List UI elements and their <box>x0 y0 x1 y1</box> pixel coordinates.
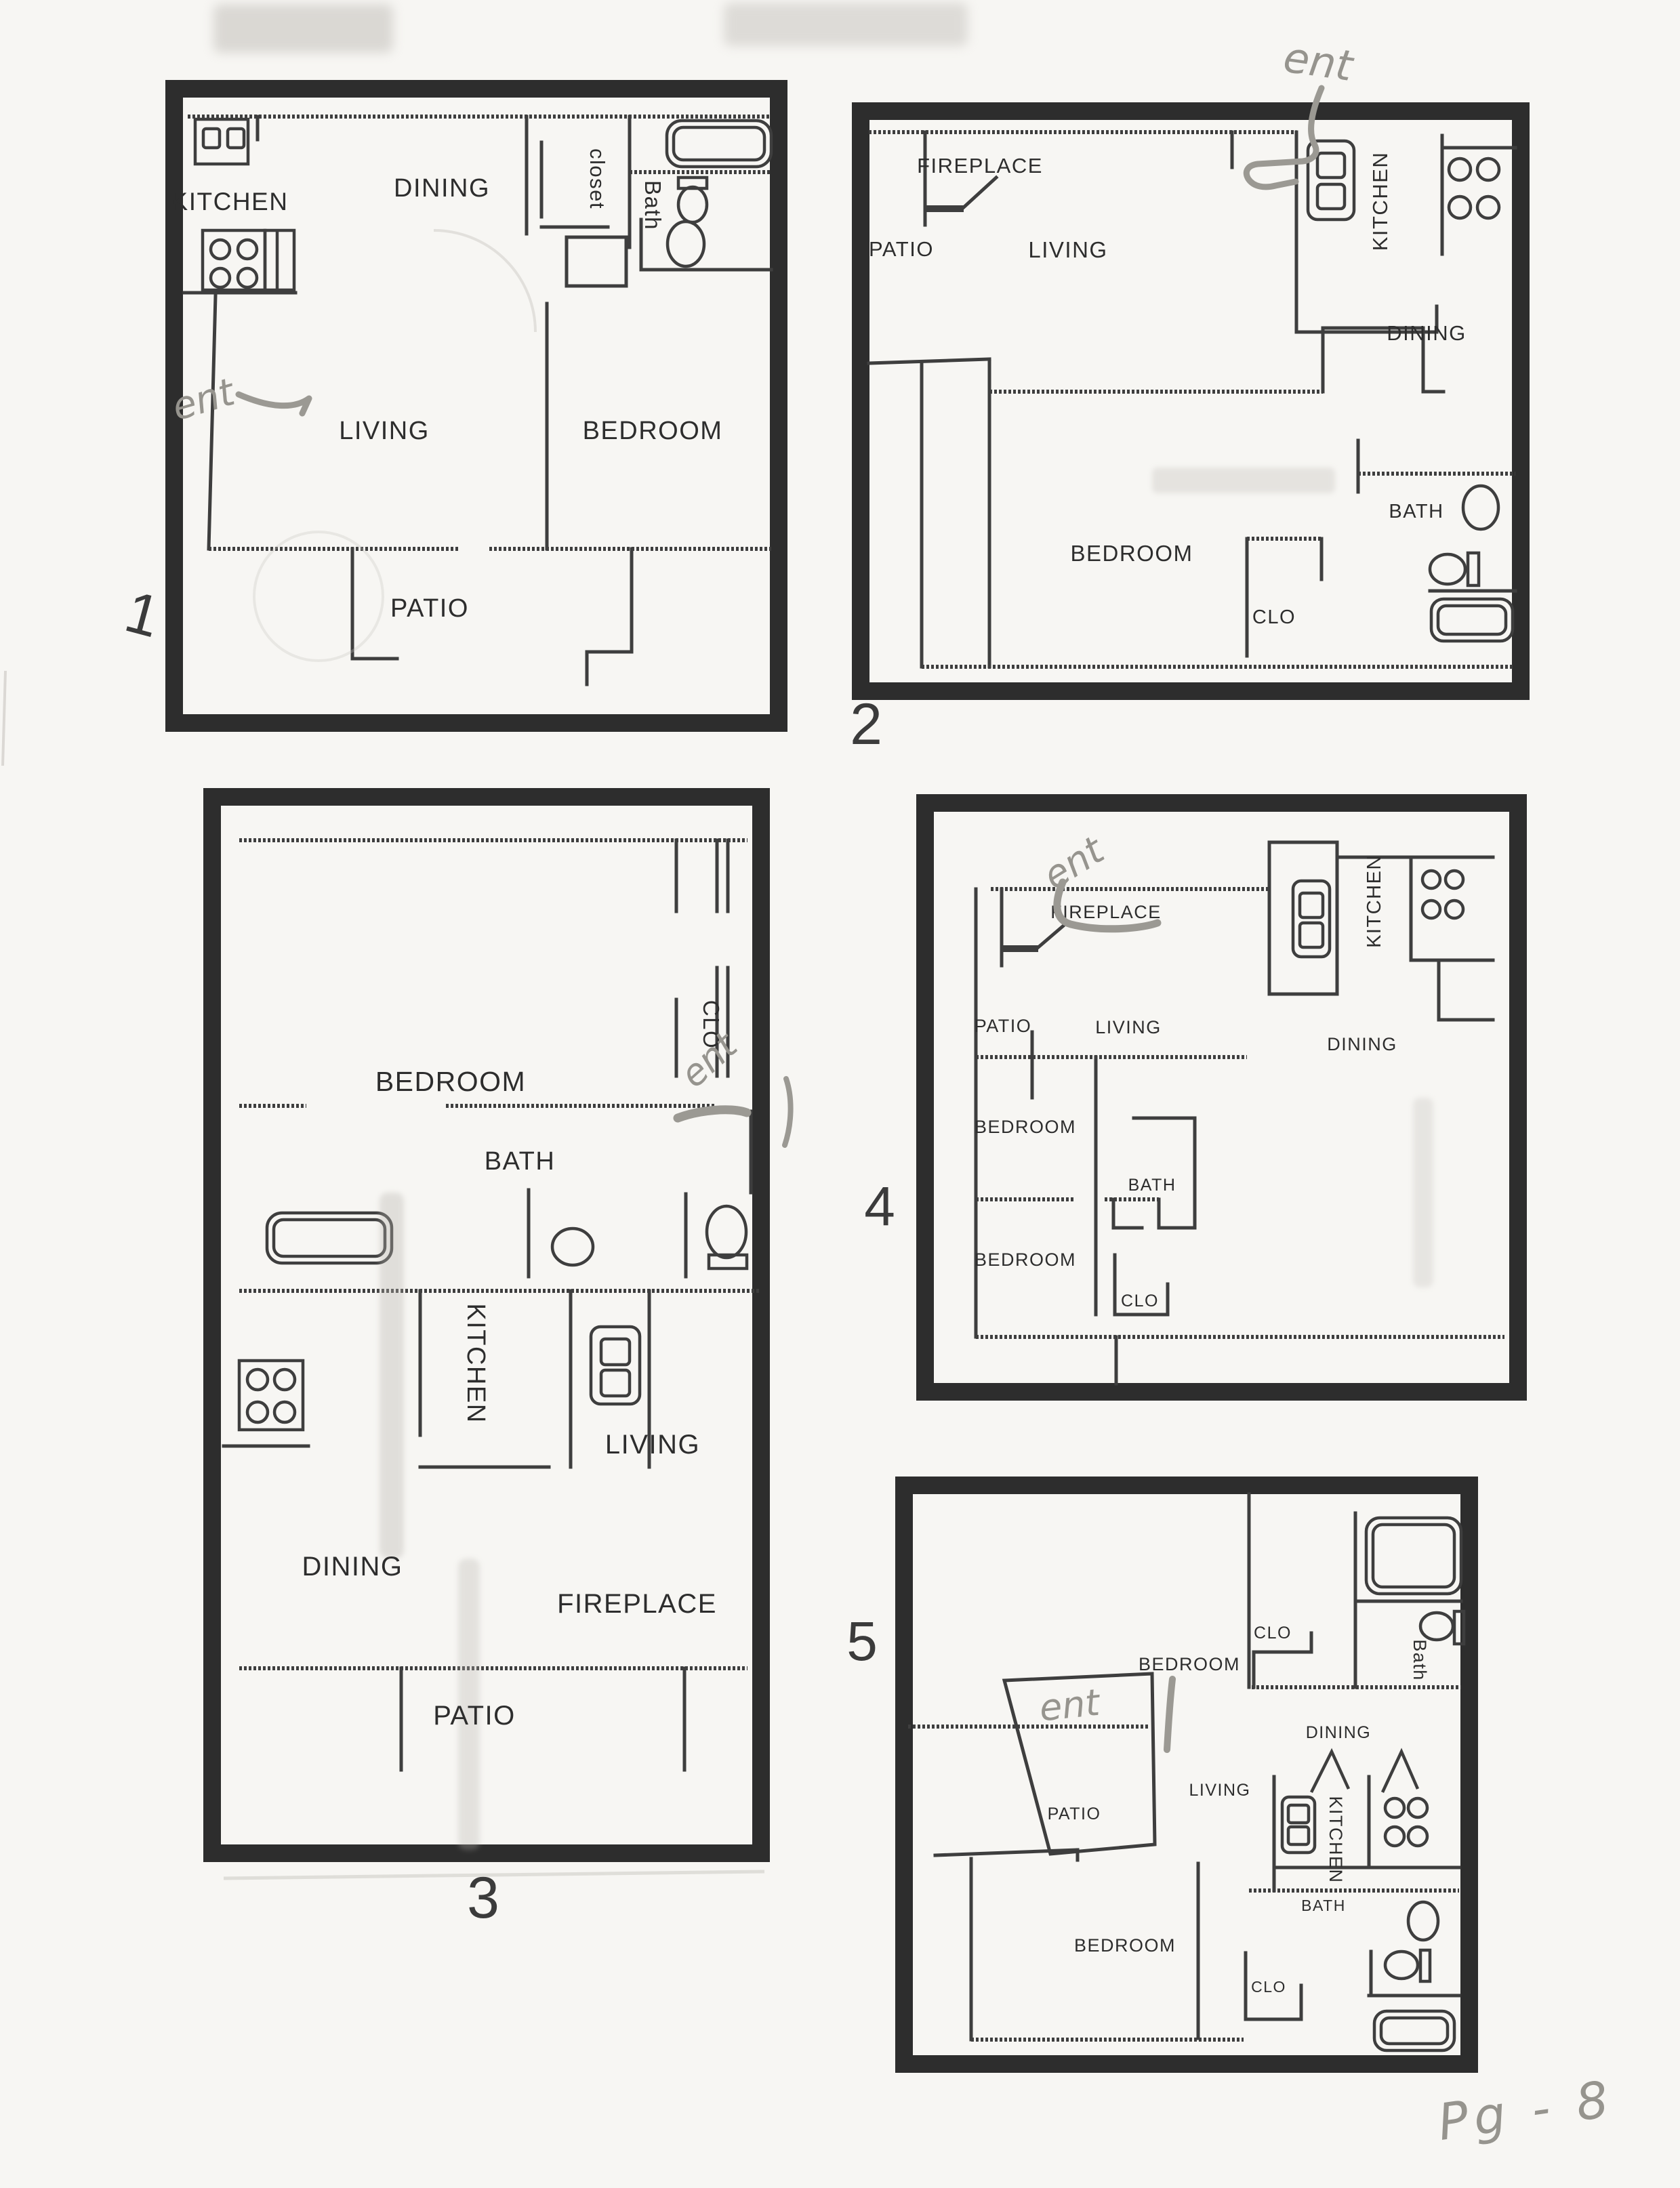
plan1-label-bedroom: BEDROOM <box>583 417 723 445</box>
plan5-number: 5 <box>846 1611 878 1672</box>
plan1-number: 1 <box>119 579 167 650</box>
floor-plan-5: CLO Bath BEDROOM DINING PATIO LIVING KIT… <box>846 1485 1469 2064</box>
bleedthrough-smudge <box>1413 1098 1433 1287</box>
plan5-label-kitchen: KITCHEN <box>1326 1796 1346 1883</box>
plan2-number: 2 <box>850 692 882 757</box>
plan1-sink-counter-icon <box>195 119 248 164</box>
plan4-label-bedroom1: BEDROOM <box>975 1117 1076 1137</box>
floor-plan-1: KITCHEN DINING closet Bath LIVING BEDROO… <box>119 89 779 723</box>
plan1-label-bath: Bath <box>640 180 665 230</box>
plan2-label-fireplace: FIREPLACE <box>917 154 1043 178</box>
plan4-stove-icon <box>1422 871 1463 918</box>
plan2-label-kitchen: KITCHEN <box>1368 152 1392 251</box>
plan5-fridge-icon <box>1282 1797 1315 1853</box>
plan5-double-door-icon <box>1311 1752 1418 1792</box>
plan5-label-bath1: Bath <box>1410 1639 1430 1681</box>
plan4-label-living: LIVING <box>1095 1017 1162 1037</box>
plan4-label-clo: CLO <box>1121 1292 1159 1310</box>
floor-plan-3: BEDROOM CLO BATH KITCHEN LIVING DINING F… <box>212 797 791 1931</box>
plan4-label-patio: PATIO <box>975 1016 1032 1036</box>
plan4-border <box>925 803 1518 1392</box>
scan-edge-mark <box>3 671 5 766</box>
plan4-label-bath: BATH <box>1128 1176 1176 1195</box>
plan2-walls <box>869 132 1515 667</box>
ghost-door-arc <box>434 230 535 332</box>
plan4-number: 4 <box>864 1176 895 1237</box>
plan1-ent-annotation: ent <box>167 370 309 430</box>
plan2-sink-icon <box>1463 486 1498 529</box>
plan5-stove-icon <box>1385 1798 1427 1846</box>
plan3-label-dining: DINING <box>302 1552 403 1582</box>
bleedthrough-smudge <box>213 4 393 53</box>
plan5-border <box>904 1485 1469 2064</box>
plan5-bathtub-top-icon <box>1366 1518 1461 1594</box>
plan1-bathtub-icon <box>667 121 771 167</box>
page-number-annotation: Pg - 8 <box>1435 2070 1618 2152</box>
plan4-fridge-icon <box>1293 881 1330 957</box>
plan1-stove-icon <box>203 230 294 290</box>
scanned-page: KITCHEN DINING closet Bath LIVING BEDROO… <box>0 0 1680 2188</box>
plan3-label-living: LIVING <box>605 1430 700 1460</box>
plan5-label-dining: DINING <box>1306 1723 1372 1742</box>
plan3-bathtub-icon <box>267 1213 392 1263</box>
plan5-walls <box>908 1494 1461 2040</box>
svg-text:ent: ent <box>672 1023 746 1096</box>
svg-text:ent: ent <box>1038 1680 1103 1729</box>
plan5-label-bedroom2: BEDROOM <box>1074 1935 1176 1956</box>
floor-plan-2: FIREPLACE PATIO LIVING KITCHEN DINING BE… <box>850 32 1521 757</box>
plan3-label-patio: PATIO <box>433 1701 516 1731</box>
plan2-label-patio: PATIO <box>869 237 934 261</box>
floor-plan-4: FIREPLACE PATIO LIVING KITCHEN DINING BE… <box>864 803 1518 1392</box>
plan5-label-clo2: CLO <box>1251 1978 1286 1996</box>
bleedthrough-smudge <box>380 1193 404 1559</box>
plan3-label-bedroom: BEDROOM <box>375 1066 526 1097</box>
plan1-label-patio: PATIO <box>390 594 469 623</box>
bleedthrough-smudge <box>1152 468 1335 493</box>
plan5-label-bath2: BATH <box>1301 1897 1346 1914</box>
plan2-bathtub-icon <box>1431 599 1513 641</box>
plan3-label-fireplace: FIREPLACE <box>557 1589 717 1619</box>
plan2-border <box>861 111 1521 691</box>
plan3-label-kitchen: KITCHEN <box>462 1303 490 1423</box>
plan5-label-patio: PATIO <box>1048 1804 1101 1823</box>
plan1-toilet-icon <box>678 178 707 222</box>
plan2-label-living: LIVING <box>1028 237 1107 262</box>
plan2-label-clo: CLO <box>1252 606 1296 628</box>
plan4-label-kitchen: KITCHEN <box>1364 854 1385 948</box>
plan1-label-closet: closet <box>586 148 609 209</box>
plan3-ent-annotation: ent <box>672 1023 791 1145</box>
plan5-label-bedroom1: BEDROOM <box>1139 1654 1240 1674</box>
plan5-sink-icon <box>1408 1902 1438 1940</box>
plan5-label-living: LIVING <box>1189 1781 1251 1800</box>
plan5-label-clo1: CLO <box>1254 1624 1292 1643</box>
plan3-toilet-icon <box>707 1206 747 1268</box>
plan4-label-bedroom2: BEDROOM <box>975 1250 1076 1270</box>
plan4-label-dining: DINING <box>1327 1034 1397 1054</box>
plan2-label-bedroom: BEDROOM <box>1070 541 1193 566</box>
plan1-sink-icon <box>668 222 704 266</box>
plan2-stove-icon <box>1449 159 1499 218</box>
bleedthrough-smudge <box>724 3 968 46</box>
plan5-bathtub-bottom-icon <box>1374 2011 1454 2050</box>
plan5-toilet-bottom-icon <box>1385 1950 1430 1981</box>
svg-text:ent: ent <box>1281 32 1358 91</box>
plan3-fridge-icon <box>591 1327 640 1404</box>
plan1-label-living: LIVING <box>339 417 430 445</box>
ghost-circle <box>254 532 383 661</box>
plan3-sink-icon <box>552 1229 593 1265</box>
plan2-toilet-icon <box>1430 553 1479 585</box>
plan3-walls <box>224 840 761 1770</box>
plan2-label-bath: BATH <box>1389 501 1443 522</box>
plan3-stove-icon <box>239 1361 303 1430</box>
page-number-text: Pg - 8 <box>1435 2070 1618 2152</box>
plan2-label-dining: DINING <box>1387 321 1467 345</box>
plan1-label-dining: DINING <box>394 174 490 203</box>
plan3-label-bath: BATH <box>485 1147 556 1176</box>
plan1-label-kitchen: KITCHEN <box>171 188 289 215</box>
floor-plans-drawing: KITCHEN DINING closet Bath LIVING BEDROO… <box>0 0 1680 2188</box>
